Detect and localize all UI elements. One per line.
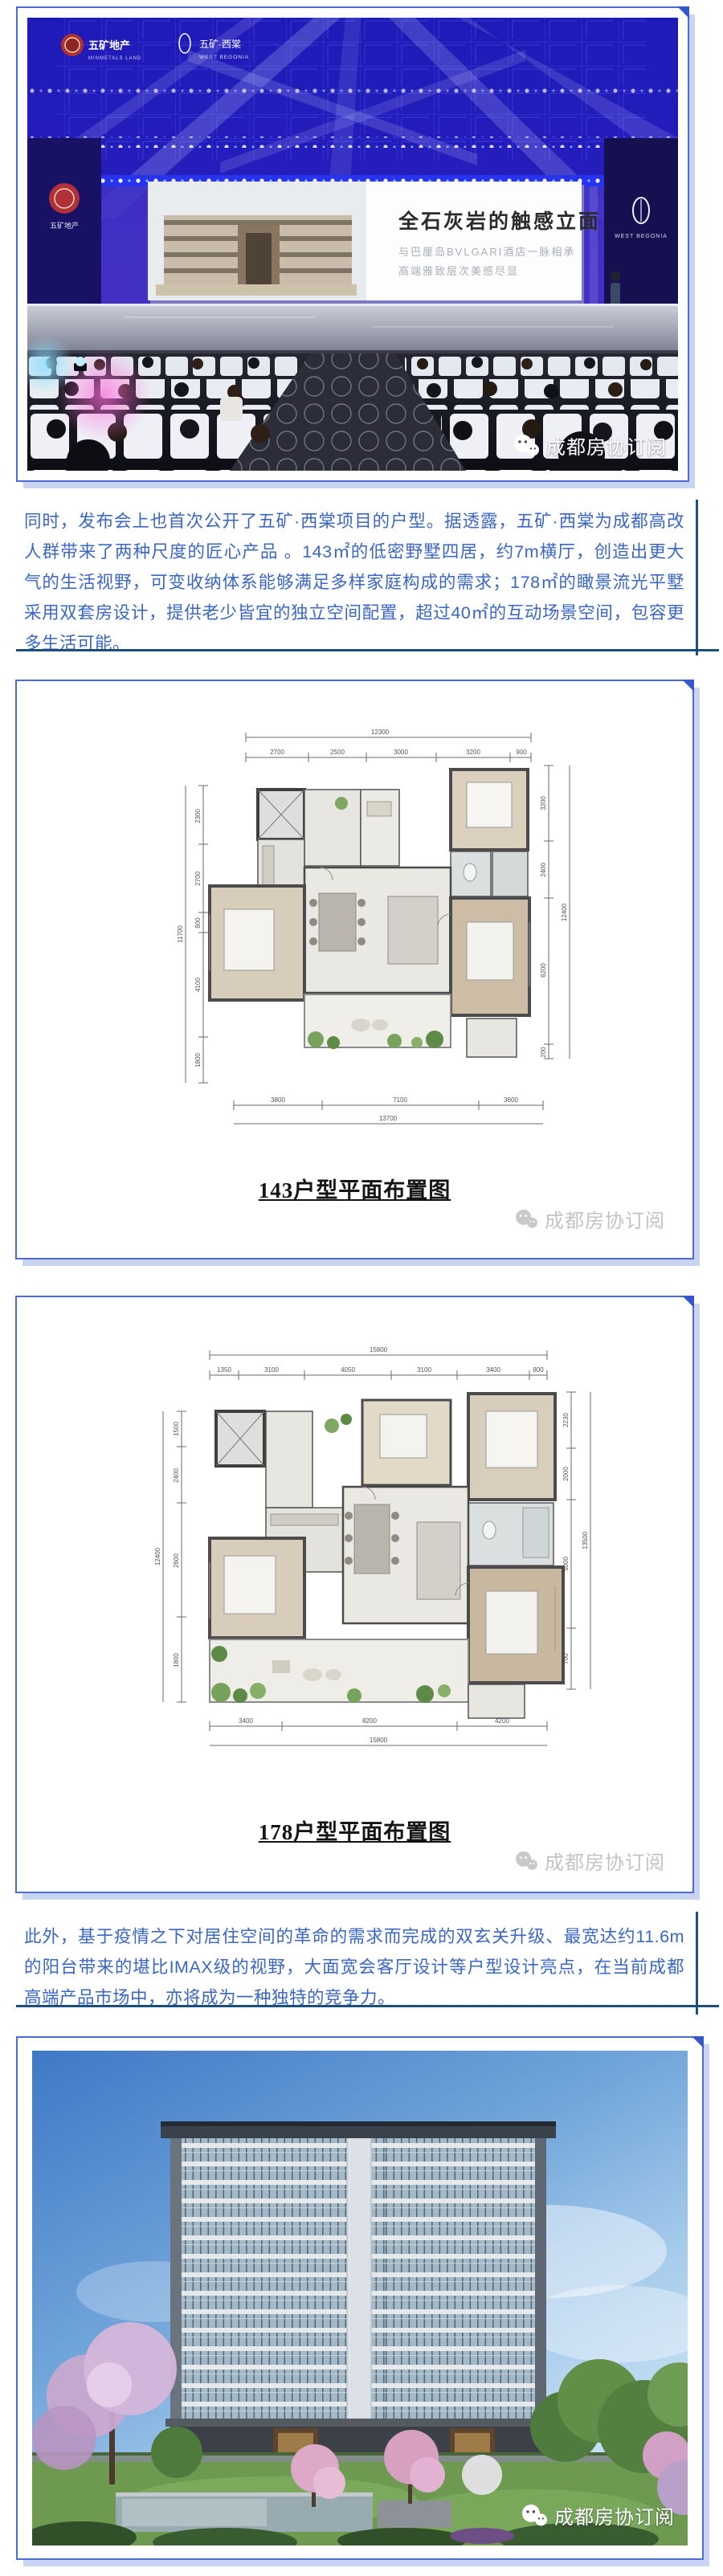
article-paragraph-1: 同时，发布会上也首次公开了五矿·西棠项目的户型。据透露，五矿·西棠为成都高改人群… [24,506,684,659]
logo-minmetals-cn: 五矿地产 [88,39,130,51]
bathroom-2 [492,851,528,896]
svg-text:12300: 12300 [371,729,390,736]
watermark-label: 成都房协订阅 [545,1205,665,1233]
svg-text:2600: 2600 [173,1553,180,1568]
svg-text:3100: 3100 [417,1366,431,1374]
left-panel-label: 五矿地产 [50,221,79,230]
svg-text:2700: 2700 [194,872,202,886]
svg-text:11700: 11700 [177,925,184,943]
svg-text:2000: 2000 [562,1467,570,1481]
svg-text:800: 800 [194,917,202,929]
svg-text:4100: 4100 [194,978,202,992]
page-fold-icon [692,2036,704,2048]
svg-text:3800: 3800 [271,1096,285,1104]
svg-text:3200: 3200 [540,796,547,810]
event-photo: 五矿地产 WEST BEGONIA [27,18,678,471]
svg-text:8200: 8200 [362,1717,377,1725]
watermark-label: 成都房协订阅 [546,431,667,459]
wechat-icon [515,1851,539,1872]
svg-text:800: 800 [533,1366,544,1374]
watermark-label: 成都房协订阅 [554,2501,675,2529]
wechat-icon [521,2504,549,2528]
svg-text:1800: 1800 [173,1653,180,1668]
svg-text:15800: 15800 [370,1737,388,1744]
svg-text:13500: 13500 [582,1531,589,1549]
wechat-icon [513,434,541,458]
svg-text:3100: 3100 [264,1366,279,1374]
center-pier [347,2138,371,2437]
svg-text:2400: 2400 [173,1468,180,1483]
building-render-frame: 成都房协订阅 [16,2036,704,2560]
svg-text:900: 900 [516,749,527,756]
watermark: 成都房协订阅 [515,1847,665,1875]
watermark: 成都房协订阅 [513,431,667,459]
svg-text:7100: 7100 [393,1096,407,1104]
logo-project-en: WEST BEGONIA [199,55,249,60]
plan-143-drawing: 12300 2700 2500 3000 3200 900 2300 2700 … [17,681,692,1258]
svg-text:1800: 1800 [194,1053,202,1068]
utility-balcony [467,1019,517,1057]
svg-text:4050: 4050 [341,1366,355,1374]
stage-floor [27,304,678,353]
section-divider-line [16,649,719,651]
floor-plan-rooms [210,770,529,1057]
side-accent-bar [696,500,698,655]
svg-text:1500: 1500 [173,1422,180,1436]
slide-title: 全石灰岩的触感立面 [398,210,601,233]
landscape [32,2452,688,2545]
svg-text:2400: 2400 [540,863,547,877]
foyer [266,1411,312,1508]
article-page: 五矿地产 WEST BEGONIA [0,0,723,2576]
side-accent-bar [696,1912,698,2015]
minmetals-seal-icon [49,183,80,214]
projection-screen: 全石灰岩的触感立面 与巴厘岛BVLGARI酒店一脉相承 高端雅致层次美感尽显 [148,182,601,304]
slide-subtitle-2: 高端雅致层次美感尽显 [398,265,519,277]
utility-balcony [468,1684,525,1718]
article-paragraph-2: 此外，基于疫情之下对居住空间的革命的需求而完成的双玄关升级、最宽达约11.6m的… [24,1921,684,2013]
svg-text:3600: 3600 [504,1096,518,1104]
residential-tower [161,2121,556,2464]
svg-text:3400: 3400 [486,1366,500,1374]
svg-text:3200: 3200 [466,749,480,756]
plan-143-frame: 12300 2700 2500 3000 3200 900 2300 2700 … [15,680,694,1259]
svg-text:3400: 3400 [239,1717,253,1725]
building-render [32,2051,688,2545]
svg-text:2500: 2500 [330,749,345,756]
study [361,790,399,866]
watermark: 成都房协订阅 [515,1205,665,1233]
wechat-icon [515,1209,539,1230]
entry-hall [304,790,361,866]
watermark: 成都房协订阅 [521,2501,675,2529]
floor-plan-rooms [210,1394,563,1718]
event-photo-frame: 五矿地产 WEST BEGONIA [16,6,689,482]
svg-text:2300: 2300 [194,809,202,823]
svg-text:200: 200 [540,1047,547,1058]
slide-subtitle-1: 与巴厘岛BVLGARI酒店一脉相承 [398,246,575,258]
page-fold-icon [682,1296,694,1308]
svg-text:6200: 6200 [540,963,547,978]
svg-text:1350: 1350 [217,1366,231,1374]
svg-text:2700: 2700 [270,749,284,756]
svg-text:13700: 13700 [379,1115,398,1122]
svg-text:12400: 12400 [561,903,568,921]
logo-minmetals-en: MINMETALS LAND [88,56,141,61]
right-panel-label: WEST BEGONIA [615,234,668,239]
plan-178-caption: 178户型平面布置图 [17,1815,692,1846]
logo-project-cn: 五矿·西棠 [199,39,241,50]
section-divider-line [16,2005,719,2007]
svg-text:3000: 3000 [394,749,408,756]
svg-text:2230: 2230 [562,1413,570,1427]
plan-143-caption: 143户型平面布置图 [17,1173,692,1204]
plan-178-frame: 15800 1350 3100 4050 3100 3400 800 1500 … [15,1296,694,1893]
svg-text:15800: 15800 [370,1346,388,1353]
screen-building-photo [148,182,366,300]
plan-178-drawing: 15800 1350 3100 4050 3100 3400 800 1500 … [17,1297,692,1892]
page-fold-icon [677,6,689,18]
svg-text:12400: 12400 [154,1547,161,1566]
page-fold-icon [682,680,694,692]
watermark-label: 成都房协订阅 [545,1847,665,1875]
